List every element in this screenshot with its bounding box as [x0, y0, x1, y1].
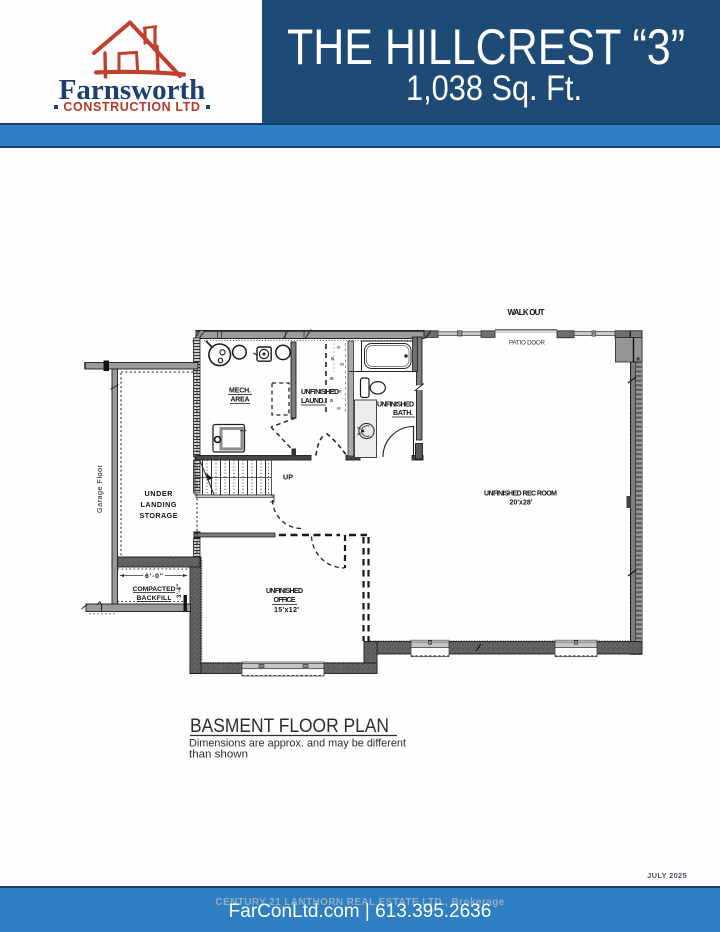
- svg-text:BASMENT FLOOR PLAN: BASMENT FLOOR PLAN: [190, 716, 389, 737]
- svg-text:STORAGE: STORAGE: [140, 511, 178, 520]
- svg-text:OFFICE: OFFICE: [274, 597, 296, 604]
- svg-text:AREA: AREA: [231, 397, 250, 404]
- svg-text:MECH.: MECH.: [229, 388, 251, 395]
- svg-text:3'-4": 3'-4": [177, 584, 183, 598]
- svg-text:than shown: than shown: [189, 749, 248, 761]
- svg-text:6'-0": 6'-0": [145, 573, 163, 580]
- svg-text:UNFINISHED REC ROOM: UNFINISHED REC ROOM: [484, 491, 557, 498]
- svg-text:BACKFILL: BACKFILL: [137, 595, 172, 602]
- svg-text:UP: UP: [283, 473, 293, 482]
- svg-text:BATH.: BATH.: [393, 410, 413, 417]
- svg-text:UNFINISHED: UNFINISHED: [301, 389, 339, 396]
- svg-text:PATIO DOOR: PATIO DOOR: [509, 340, 546, 347]
- svg-text:LANDING: LANDING: [141, 500, 177, 509]
- svg-text:UNFINISHED: UNFINISHED: [266, 588, 303, 595]
- svg-text:WALK OUT: WALK OUT: [508, 308, 545, 317]
- svg-text:20'x28': 20'x28': [510, 500, 533, 507]
- svg-text:UNDER: UNDER: [145, 489, 174, 498]
- svg-text:Garage Floor: Garage Floor: [95, 464, 104, 513]
- svg-text:15'x12': 15'x12': [274, 607, 299, 614]
- svg-text:UNFINISHED: UNFINISHED: [377, 402, 414, 409]
- svg-text:COMPACTED: COMPACTED: [133, 586, 176, 593]
- svg-text:LAUND.: LAUND.: [301, 398, 325, 405]
